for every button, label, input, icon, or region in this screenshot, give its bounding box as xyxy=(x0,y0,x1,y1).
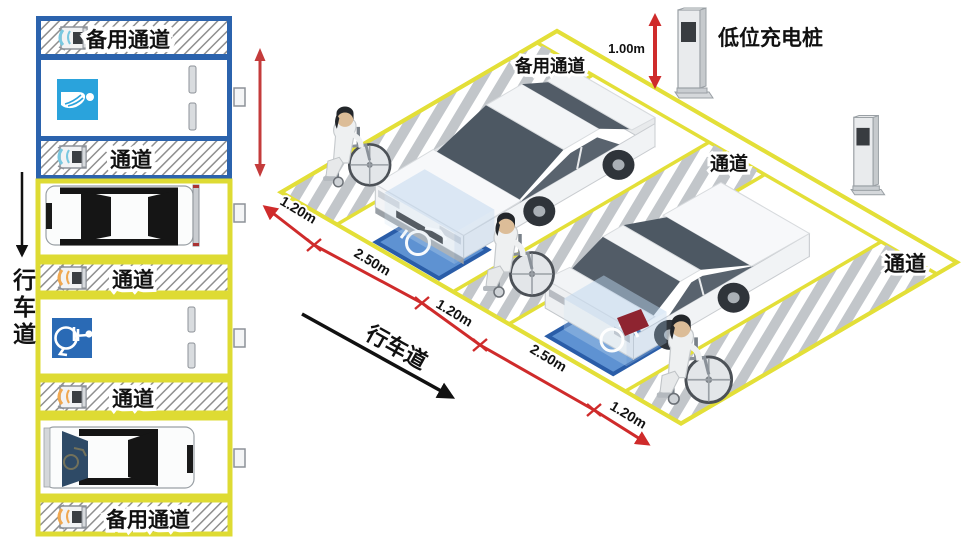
svg-text:备用通道: 备用通道 xyxy=(514,56,585,76)
svg-text:道: 道 xyxy=(13,321,36,347)
svg-text:通道: 通道 xyxy=(710,152,748,175)
svg-text:备用通道: 备用通道 xyxy=(105,508,190,532)
svg-text:通道: 通道 xyxy=(112,268,154,292)
svg-text:通道: 通道 xyxy=(110,148,152,172)
svg-text:通道: 通道 xyxy=(884,252,926,276)
svg-text:行: 行 xyxy=(12,267,36,293)
svg-text:1.00m: 1.00m xyxy=(608,41,645,56)
svg-text:车: 车 xyxy=(13,294,36,320)
svg-text:备用通道: 备用通道 xyxy=(85,28,170,52)
svg-text:低位充电桩: 低位充电桩 xyxy=(717,26,823,50)
svg-text:通道: 通道 xyxy=(112,387,154,411)
